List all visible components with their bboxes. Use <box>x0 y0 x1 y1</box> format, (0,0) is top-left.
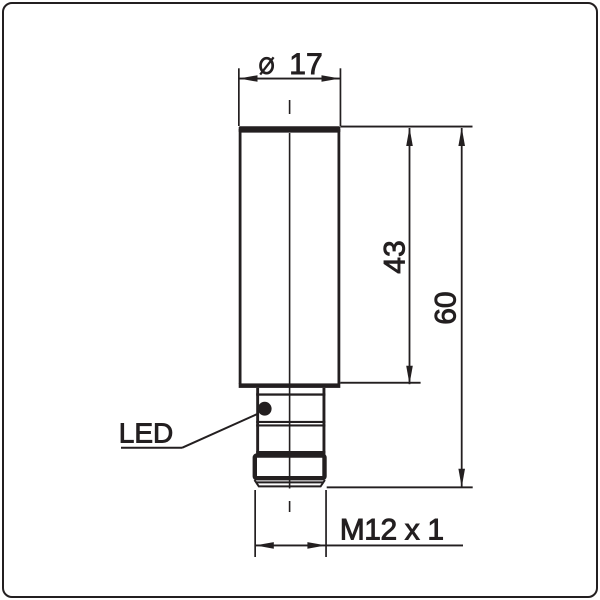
svg-text:M12 x 1: M12 x 1 <box>340 514 444 547</box>
svg-text:60: 60 <box>430 291 463 324</box>
svg-text:LED: LED <box>119 417 173 448</box>
svg-text:43: 43 <box>378 240 411 273</box>
svg-text:17: 17 <box>289 48 322 81</box>
